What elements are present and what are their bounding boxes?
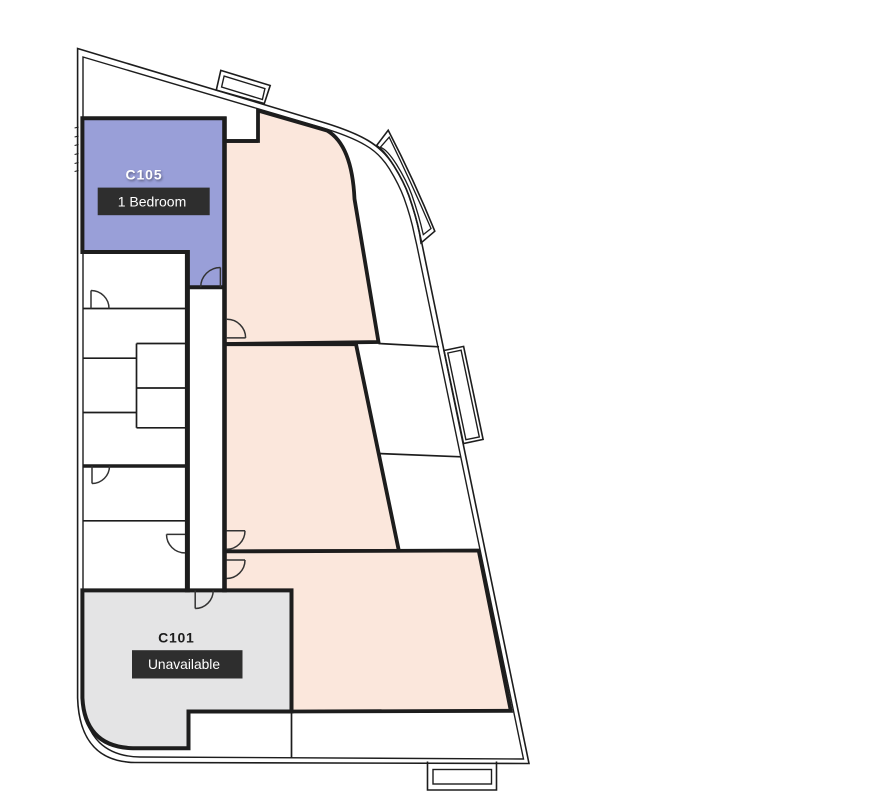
svg-text:Unavailable: Unavailable	[148, 657, 220, 672]
svg-text:1 Bedroom: 1 Bedroom	[118, 193, 186, 209]
svg-text:C101: C101	[158, 630, 194, 646]
svg-text:C105: C105	[125, 166, 162, 182]
